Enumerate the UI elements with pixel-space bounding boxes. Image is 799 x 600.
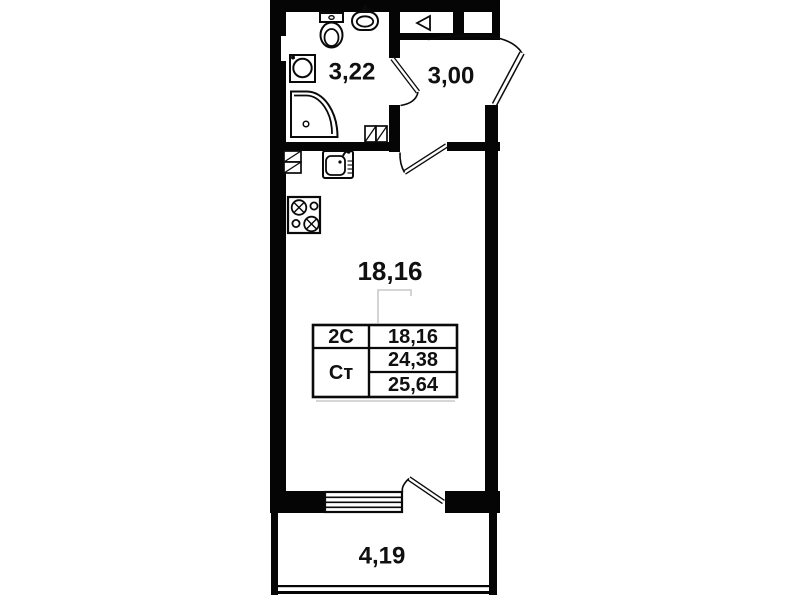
room-door-arc: [400, 153, 405, 173]
wall-notch-left: [281, 36, 289, 61]
ghost-line-artifact: [378, 290, 411, 323]
table-cell-type-2: Ст: [329, 362, 353, 384]
toilet-icon: [320, 13, 343, 48]
wall-bathroom-east-upper: [389, 12, 400, 58]
kitchen-sink-icon: [323, 149, 353, 178]
balcony-railing-line-2: [271, 591, 497, 594]
balcony-wall-left: [271, 513, 278, 595]
balcony-railing-line-1: [271, 585, 497, 587]
room-door-swing: [400, 146, 447, 173]
living-room-area-label: 18,16: [357, 256, 422, 286]
balcony-door-swing: [402, 479, 443, 503]
balcony-area-label: 4,19: [359, 543, 406, 570]
toilet-tank: [320, 13, 343, 22]
wall-niche: [464, 12, 492, 33]
wall-hall-south: [447, 142, 500, 151]
bathroom-door-swing: [393, 59, 419, 106]
room-door-leaf-inner: [405, 146, 447, 173]
bathroom-door-leaf-inner: [393, 59, 419, 93]
table-cell-value-1: 18,16: [388, 326, 438, 348]
vent-shaft-icon: [365, 126, 387, 142]
bathroom-area-label: 3,22: [329, 59, 376, 86]
wall-bottom-right: [445, 491, 500, 513]
kitchen-sink-drain: [338, 160, 341, 163]
wall-bottom-left: [270, 491, 325, 513]
window: [325, 492, 402, 512]
toilet-bowl: [321, 23, 343, 48]
wall-left: [270, 0, 286, 513]
washing-machine-icon: [284, 151, 301, 173]
floor-plan-svg: 3,22 3,00 18,16 4,19 2С 18,16 Ст 24,38 2…: [0, 0, 799, 600]
hall-area-label: 3,00: [428, 63, 475, 90]
floor-plan-page: 3,22 3,00 18,16 4,19 2С 18,16 Ст 24,38 2…: [0, 0, 799, 600]
table-cell-value-3: 25,64: [388, 374, 439, 396]
entrance-door-leaf-inner: [495, 53, 523, 105]
wall-top-hall-upper-strip: [400, 0, 453, 12]
stove-icon: [288, 197, 320, 233]
washbasin-cabinet-icon: [290, 55, 315, 82]
shower-icon: [291, 92, 338, 138]
wall-bathroom-south: [270, 142, 400, 151]
balcony-door-arc: [402, 479, 409, 493]
table-cell-type-1: 2С: [328, 326, 354, 348]
balcony-wall-right: [489, 513, 497, 595]
wall-top-bathroom: [270, 0, 400, 12]
area-info-table: 2С 18,16 Ст 24,38 25,64: [313, 325, 457, 397]
balcony-door-leaf-inner: [409, 479, 444, 503]
washbasin-tap-dot: [291, 56, 295, 60]
entrance-marker-icon: [417, 16, 430, 30]
table-cell-value-2: 24,38: [388, 349, 438, 371]
kitchen-sink-tap-head: [346, 149, 350, 153]
bathroom-door-arc: [401, 92, 419, 106]
wall-right: [485, 105, 498, 513]
